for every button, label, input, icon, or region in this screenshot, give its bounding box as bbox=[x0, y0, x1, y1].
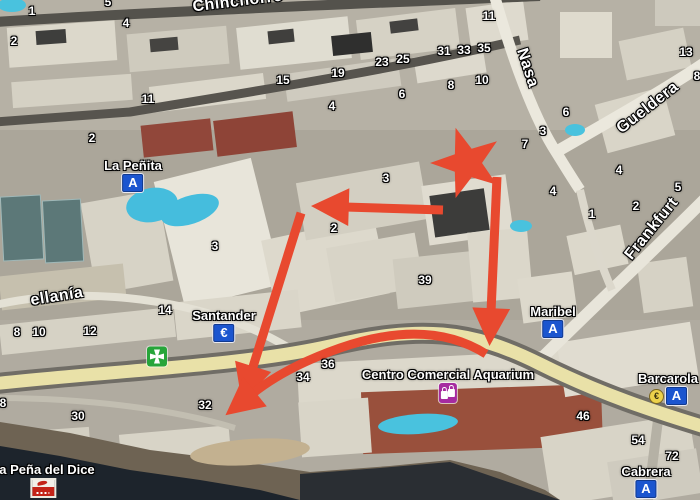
route-arrow-diagonal-icon bbox=[252, 213, 301, 370]
route-annotations bbox=[0, 0, 700, 500]
satellite-route-map: ChinchorroNasaGuelderaFrankfurtellanía 1… bbox=[0, 0, 700, 500]
route-arrow-left-icon bbox=[345, 207, 443, 210]
route-arrow-down-icon bbox=[491, 177, 497, 312]
route-arrow-curve-icon bbox=[252, 334, 486, 394]
